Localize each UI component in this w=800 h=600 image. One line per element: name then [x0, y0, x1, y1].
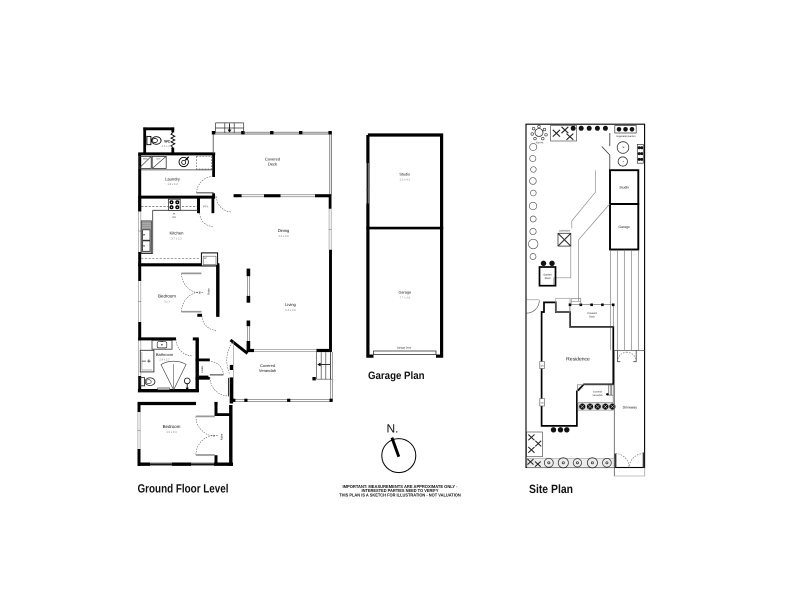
svg-text:THIS PLAN IS A SKETCH FOR ILLU: THIS PLAN IS A SKETCH FOR ILLUSTRATION -…: [339, 493, 461, 498]
svg-text:Garage: Garage: [398, 291, 411, 295]
svg-text:Bedroom: Bedroom: [163, 424, 181, 429]
svg-text:Verandah: Verandah: [259, 368, 276, 373]
svg-text:1.6 x 2.4: 1.6 x 2.4: [162, 145, 173, 148]
svg-text:RC: RC: [204, 257, 208, 260]
svg-text:Covered: Covered: [587, 312, 597, 315]
svg-text:3.3 x 3.3: 3.3 x 3.3: [166, 431, 177, 434]
svg-text:N.: N.: [387, 422, 399, 436]
svg-text:WC: WC: [164, 140, 170, 144]
svg-text:Deck: Deck: [268, 162, 277, 167]
svg-text:Laundry: Laundry: [165, 177, 181, 182]
svg-text:Garden: Garden: [543, 274, 552, 277]
svg-text:Ground Floor Level: Ground Floor Level: [138, 482, 229, 496]
svg-text:7.7 x 3.9: 7.7 x 3.9: [400, 297, 411, 300]
svg-text:Driveway: Driveway: [623, 406, 638, 410]
svg-text:LINEN: LINEN: [201, 366, 204, 373]
svg-text:5.4 x 3.9: 5.4 x 3.9: [285, 309, 296, 312]
svg-text:PTY.: PTY.: [203, 205, 209, 208]
svg-text:Dining: Dining: [278, 228, 290, 233]
svg-text:Site Plan: Site Plan: [529, 482, 573, 496]
svg-text:W.M.: W.M.: [143, 157, 148, 160]
svg-text:Robe: Robe: [221, 433, 224, 440]
svg-text:Garage Door: Garage Door: [397, 347, 412, 350]
svg-text:D'er: D'er: [157, 157, 161, 160]
svg-text:3.5 x 4.3: 3.5 x 4.3: [400, 179, 411, 182]
svg-text:Robe: Robe: [208, 288, 211, 295]
svg-text:OV.: OV.: [172, 216, 176, 219]
svg-text:Bathroom: Bathroom: [156, 352, 174, 357]
svg-text:Studio: Studio: [619, 185, 629, 189]
svg-text:Verandah: Verandah: [592, 394, 603, 397]
svg-text:Shed: Shed: [545, 277, 551, 280]
svg-text:Clothesline: Clothesline: [559, 230, 571, 233]
svg-text:Fire Pit: Fire Pit: [536, 142, 544, 145]
svg-text:3.7 x 3.3: 3.7 x 3.3: [171, 238, 182, 241]
svg-text:Residence: Residence: [566, 356, 590, 362]
svg-text:2.4 x 2.7: 2.4 x 2.7: [159, 358, 170, 361]
svg-text:W'D: W'D: [540, 364, 544, 367]
svg-text:W'D: W'D: [540, 401, 544, 404]
svg-text:3 x 3: 3 x 3: [164, 300, 170, 303]
svg-text:Living: Living: [285, 302, 296, 307]
svg-text:Vegetable Garden: Vegetable Garden: [616, 135, 636, 138]
svg-text:Studio: Studio: [399, 173, 410, 177]
svg-text:Bedroom: Bedroom: [158, 294, 176, 299]
svg-text:Deck: Deck: [589, 316, 595, 319]
svg-text:Garage Plan: Garage Plan: [368, 370, 425, 382]
svg-text:Kitchen: Kitchen: [170, 231, 185, 236]
svg-text:1.8 x 3.4: 1.8 x 3.4: [167, 183, 178, 186]
svg-text:3.2 x 3.9: 3.2 x 3.9: [278, 235, 289, 238]
svg-text:Garage: Garage: [619, 225, 630, 229]
